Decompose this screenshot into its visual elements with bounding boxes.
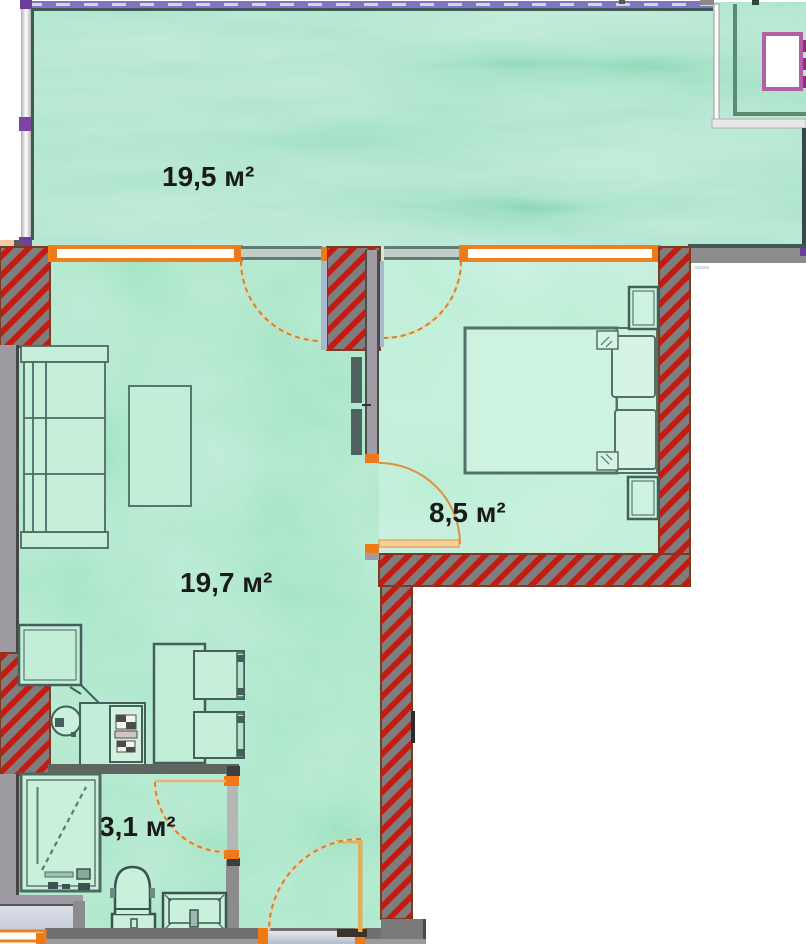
svg-text:19,7 м²: 19,7 м² (180, 567, 272, 598)
svg-text:19,5 м²: 19,5 м² (162, 161, 254, 192)
svg-text:3,1 м²: 3,1 м² (99, 811, 176, 842)
svg-text:8,5 м²: 8,5 м² (429, 497, 506, 528)
